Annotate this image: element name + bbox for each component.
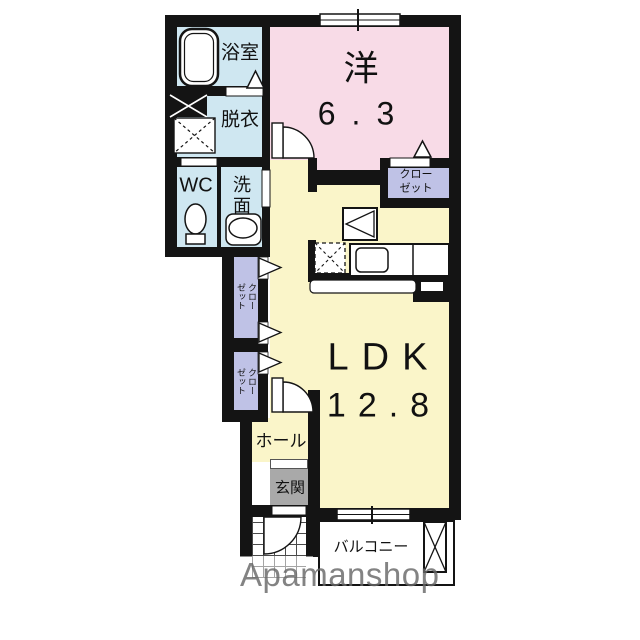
wall xyxy=(380,158,449,168)
wall xyxy=(308,158,317,192)
wall xyxy=(306,508,449,520)
wc-label: WC xyxy=(179,175,212,198)
wall xyxy=(165,157,270,167)
western-room-area: 6.3 xyxy=(318,96,410,133)
wall xyxy=(449,15,461,520)
wall xyxy=(222,247,234,422)
wall xyxy=(240,410,252,557)
entrance-label: 玄関 xyxy=(275,477,305,498)
wall xyxy=(165,15,177,257)
wall xyxy=(165,86,262,96)
corridor-floor xyxy=(270,160,308,172)
wall xyxy=(262,27,270,257)
wall xyxy=(308,170,380,185)
wall xyxy=(217,167,221,247)
wall xyxy=(380,198,449,208)
wall xyxy=(222,338,268,352)
closet-left-lower-label: クローゼット xyxy=(235,364,257,398)
hall-label: ホール xyxy=(256,427,307,452)
wall xyxy=(165,247,270,257)
wall xyxy=(165,15,461,27)
wall xyxy=(308,273,415,282)
ldk-area: 12.8 xyxy=(327,387,441,426)
wall xyxy=(308,390,320,515)
watermark-text: Apamanshop xyxy=(240,556,439,594)
washroom-label: 洗 面 xyxy=(233,175,251,217)
wall xyxy=(306,517,318,557)
floor-plan: 浴室 脱衣 WC 洗 面 洋 6.3 クロー ゼット クローゼット クローゼット… xyxy=(0,0,640,640)
closet-right-label: クロー ゼット xyxy=(400,169,433,196)
duct-notch xyxy=(421,282,443,291)
balcony-label: バルコニー xyxy=(334,536,409,557)
closet-left-upper-label: クローゼット xyxy=(235,279,257,313)
entrance-step xyxy=(270,459,308,469)
dressing-label: 脱衣 xyxy=(221,105,259,132)
bathroom-label: 浴室 xyxy=(221,38,259,65)
ldk-label: LDK xyxy=(328,337,441,380)
western-room-label: 洋 xyxy=(343,41,378,92)
